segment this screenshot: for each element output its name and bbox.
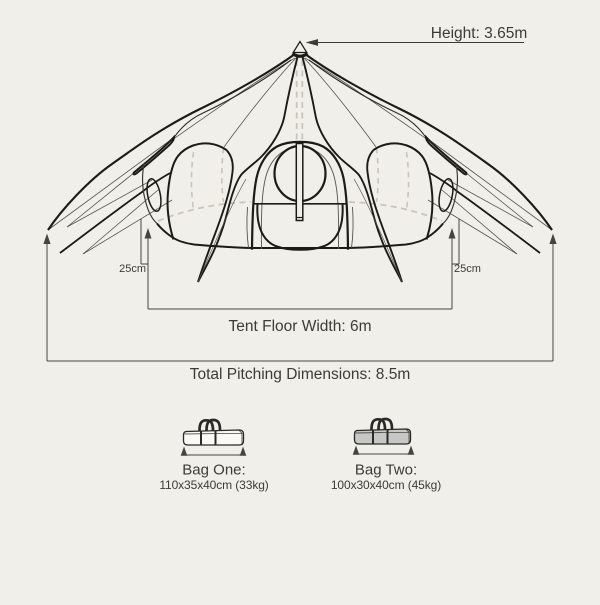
svg-text:25cm: 25cm: [454, 263, 481, 275]
svg-text:Tent Floor Width: 6m: Tent Floor Width: 6m: [229, 318, 372, 335]
svg-text:Total Pitching Dimensions: 8.5: Total Pitching Dimensions: 8.5m: [190, 366, 411, 383]
svg-text:100x30x40cm (45kg): 100x30x40cm (45kg): [331, 478, 441, 492]
svg-text:110x35x40cm (33kg): 110x35x40cm (33kg): [159, 478, 268, 492]
svg-text:25cm: 25cm: [119, 263, 146, 275]
svg-text:Bag One:: Bag One:: [182, 462, 245, 479]
svg-text:Height: 3.65m: Height: 3.65m: [431, 25, 528, 42]
svg-text:Bag Two:: Bag Two:: [355, 462, 417, 479]
